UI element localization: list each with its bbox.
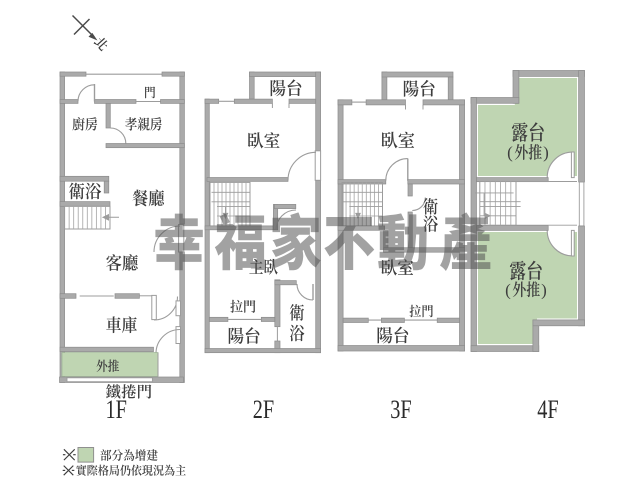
svg-text:1F: 1F xyxy=(105,396,126,425)
svg-text:): ) xyxy=(541,281,547,300)
svg-text:(: ( xyxy=(507,143,513,162)
svg-text:): ) xyxy=(543,143,549,162)
svg-text:2F: 2F xyxy=(253,396,274,425)
svg-text:3F: 3F xyxy=(390,396,411,425)
svg-text:(: ( xyxy=(505,281,511,300)
svg-text:4F: 4F xyxy=(537,396,558,425)
